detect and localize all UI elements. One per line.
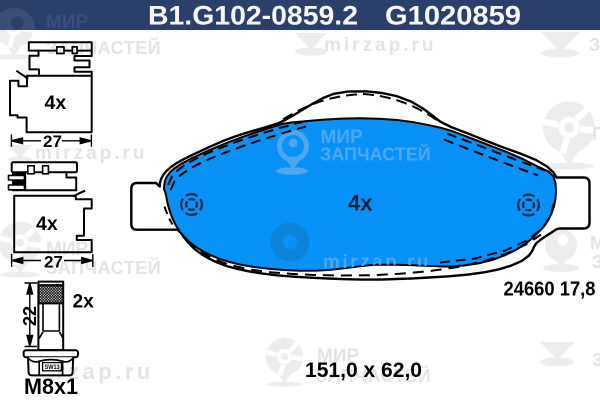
svg-text:B1.G102-0859.2: B1.G102-0859.2 [148,0,358,30]
svg-text:2x: 2x [73,292,95,313]
svg-text:24660 17,8: 24660 17,8 [504,278,596,301]
svg-text:З: З [589,35,600,55]
svg-text:ЗАПЧАСТЕЙ: ЗАПЧАСТЕЙ [320,144,431,165]
svg-text:З: З [592,350,600,370]
svg-text:mirzap.ru: mirzap.ru [324,35,437,56]
svg-text:М: М [590,233,600,253]
svg-text:22: 22 [20,306,40,326]
svg-text:МИР: МИР [46,12,88,33]
svg-text:МИР: МИР [46,239,88,260]
svg-text:rzap.ru: rzap.ru [56,359,154,384]
svg-text:ЗАПЧАСТЕЙ: ЗАПЧАСТЕЙ [46,257,161,278]
svg-text:4x: 4x [348,191,373,216]
svg-text:mirzap.ru: mirzap.ru [35,143,148,164]
svg-text:П: П [592,124,600,144]
svg-text:G1020859: G1020859 [385,0,521,30]
svg-text:ЗАПЧАСТЕЙ: ЗАПЧАСТЕЙ [316,365,431,386]
svg-text:МИР: МИР [317,346,359,367]
svg-text:4x: 4x [36,213,58,235]
svg-text:ЗАПЧАСТЕЙ: ЗАПЧАСТЕЙ [46,37,161,58]
svg-text:4x: 4x [45,92,67,114]
svg-text:З: З [592,252,600,272]
